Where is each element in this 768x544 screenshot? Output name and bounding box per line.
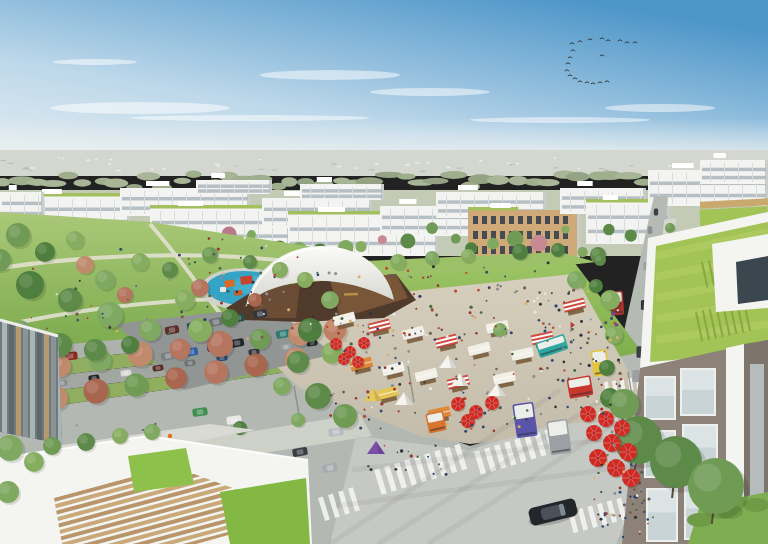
far-treeline: [58, 172, 78, 180]
umbrella-pole-top: [605, 418, 607, 420]
window: [554, 216, 559, 224]
person: [534, 270, 536, 272]
person: [356, 370, 358, 372]
tree-highlight: [172, 341, 182, 351]
roof-box: [9, 185, 17, 190]
person: [538, 291, 541, 294]
window-reflection: [646, 378, 674, 396]
person: [474, 364, 476, 366]
person: [640, 491, 642, 493]
person: [502, 336, 504, 338]
person: [611, 430, 614, 433]
person: [546, 340, 548, 342]
person: [76, 318, 79, 321]
person: [545, 327, 547, 329]
tree: [530, 235, 547, 252]
roof-box: [178, 201, 203, 206]
tree: [625, 230, 637, 242]
person: [422, 277, 425, 280]
person: [391, 367, 394, 370]
far-structure: [599, 168, 605, 169]
far-structure: [331, 164, 336, 165]
person: [345, 340, 347, 342]
person: [365, 351, 367, 353]
person: [518, 425, 521, 428]
person: [208, 237, 211, 240]
person: [488, 286, 491, 289]
far-treeline: [440, 171, 467, 179]
roof-box: [458, 185, 478, 190]
person: [632, 463, 635, 466]
person: [587, 331, 589, 333]
umbrella-pole-top: [615, 467, 617, 469]
umbrella-pole-top: [587, 413, 589, 415]
tree-highlight: [86, 381, 99, 394]
person: [506, 423, 508, 425]
car: [654, 209, 658, 216]
person: [76, 424, 78, 426]
person: [516, 290, 518, 292]
roof-box: [318, 207, 345, 212]
tree-highlight: [289, 353, 300, 364]
person: [31, 317, 33, 319]
person: [102, 317, 104, 319]
tree-highlight: [146, 426, 154, 434]
umbrella-pole-top: [593, 432, 595, 434]
umbrella-pole-top: [621, 427, 623, 429]
person: [310, 323, 312, 325]
far-structure: [86, 159, 90, 161]
tree-highlight: [167, 369, 178, 380]
person: [432, 265, 435, 268]
mullion: [234, 183, 235, 192]
facade-stripe: [51, 318, 56, 448]
mullion: [324, 187, 325, 198]
person: [475, 332, 478, 335]
person: [619, 491, 622, 494]
window: [500, 231, 505, 239]
person: [65, 315, 67, 317]
person: [495, 368, 497, 370]
mullion: [248, 183, 249, 192]
person: [416, 456, 418, 458]
penthouse-glass: [736, 256, 768, 304]
person: [79, 280, 81, 282]
person: [563, 301, 565, 303]
person: [496, 287, 499, 290]
person: [203, 318, 206, 321]
person: [616, 336, 619, 339]
person: [634, 516, 637, 519]
person: [414, 333, 416, 335]
person: [557, 378, 560, 381]
tree-highlight: [308, 386, 321, 399]
person: [610, 471, 612, 473]
person: [544, 292, 547, 295]
tree-highlight: [514, 246, 522, 254]
person: [387, 354, 389, 356]
roof-box: [42, 189, 62, 194]
aerial-render: [0, 0, 768, 544]
person: [446, 423, 449, 426]
person: [487, 391, 489, 393]
person: [598, 378, 600, 380]
far-structure: [354, 167, 357, 169]
person: [587, 337, 589, 339]
person: [394, 357, 396, 359]
far-structure: [374, 163, 378, 165]
person: [623, 503, 626, 506]
person: [595, 333, 597, 335]
person: [380, 427, 382, 429]
person: [355, 397, 358, 400]
person: [363, 415, 366, 418]
tree-highlight: [127, 376, 139, 388]
person: [619, 487, 622, 490]
person: [540, 413, 543, 416]
window: [509, 216, 514, 224]
person: [619, 514, 622, 517]
person: [209, 272, 211, 274]
person: [398, 410, 400, 412]
mullion: [672, 173, 673, 204]
umbrella-pole-top: [349, 351, 351, 353]
tree-highlight: [193, 281, 202, 290]
far-structure: [369, 169, 375, 170]
window: [680, 368, 716, 416]
person: [580, 320, 583, 323]
person: [400, 449, 403, 452]
window: [545, 216, 550, 224]
person: [366, 332, 369, 335]
umbrella-pole-top: [457, 403, 459, 405]
person: [469, 311, 472, 314]
person: [600, 384, 602, 386]
person: [548, 397, 551, 400]
person: [526, 409, 528, 411]
person: [384, 366, 387, 369]
person: [532, 300, 535, 303]
tree-highlight: [595, 255, 601, 261]
mullion: [624, 205, 625, 242]
mullion: [368, 217, 369, 254]
facade-stripe: [23, 318, 28, 448]
person: [622, 470, 625, 473]
person: [410, 454, 413, 457]
person: [252, 281, 255, 284]
person: [632, 503, 634, 505]
far-structure: [95, 158, 98, 160]
person: [119, 248, 122, 251]
tree-highlight: [190, 320, 202, 332]
person: [539, 367, 542, 370]
tree-highlight: [274, 264, 282, 272]
person: [371, 406, 373, 408]
tree-highlight: [244, 256, 251, 263]
far-structure: [516, 163, 519, 165]
facade-stripe: [2, 318, 7, 448]
window-band: [702, 168, 766, 172]
tree-highlight: [204, 249, 212, 257]
person: [317, 327, 319, 329]
far-treeline: [137, 172, 161, 180]
far-treeline: [536, 179, 559, 186]
mullion: [272, 201, 273, 226]
tree-highlight: [86, 341, 97, 352]
far-structure: [7, 163, 13, 164]
person: [461, 339, 463, 341]
person: [236, 290, 239, 293]
person: [607, 454, 609, 456]
person: [607, 524, 609, 526]
far-structure: [668, 165, 671, 167]
person: [561, 379, 564, 382]
person: [609, 404, 611, 406]
far-structure: [509, 164, 514, 165]
person: [188, 263, 190, 265]
person: [532, 375, 535, 378]
person: [542, 322, 545, 325]
person: [226, 290, 228, 292]
person: [464, 430, 467, 433]
person: [380, 402, 383, 405]
play-structure: [240, 275, 253, 285]
person: [482, 426, 485, 429]
person: [259, 304, 262, 307]
roof-box: [672, 163, 694, 168]
person: [282, 291, 284, 293]
far-structure: [30, 167, 34, 169]
person: [197, 280, 199, 282]
person: [597, 472, 599, 474]
person: [222, 272, 225, 275]
person: [423, 381, 425, 383]
umbrella-pole-top: [467, 420, 469, 422]
person: [328, 271, 331, 274]
window-band: [302, 189, 382, 193]
person: [465, 272, 467, 274]
far-structure: [415, 162, 419, 164]
person: [407, 350, 410, 353]
person: [590, 330, 592, 332]
left-glass-building: [0, 318, 63, 448]
window: [500, 246, 505, 254]
person: [619, 362, 621, 364]
person: [291, 327, 294, 330]
mullion: [686, 173, 687, 204]
tree-highlight: [177, 292, 187, 302]
umbrella-pole-top: [611, 442, 613, 444]
far-structure: [217, 165, 220, 167]
person: [250, 336, 252, 338]
tree-highlight: [275, 379, 284, 388]
person: [636, 494, 639, 497]
far-structure: [578, 168, 580, 170]
person: [580, 347, 582, 349]
person: [641, 502, 643, 504]
person: [222, 238, 224, 240]
window: [518, 216, 523, 224]
person: [366, 390, 369, 393]
person: [109, 326, 112, 329]
window-band: [122, 197, 248, 201]
person: [647, 497, 650, 500]
person: [571, 328, 573, 330]
person: [407, 269, 410, 272]
person: [376, 327, 379, 330]
person: [623, 445, 625, 447]
person: [639, 482, 641, 484]
window: [554, 231, 559, 239]
tree: [487, 238, 499, 250]
far-structure: [427, 162, 430, 164]
person: [511, 353, 514, 356]
person: [445, 473, 448, 476]
umbrella-pole-top: [627, 451, 629, 453]
mullion: [310, 187, 311, 198]
tree-highlight: [119, 289, 127, 297]
person: [240, 257, 242, 259]
person: [335, 312, 338, 315]
tree-highlight: [223, 311, 232, 320]
person: [217, 247, 220, 250]
tree-highlight: [68, 233, 77, 242]
person: [265, 292, 268, 295]
far-treeline: [73, 179, 91, 186]
tree-highlight: [552, 244, 559, 251]
roof-box: [399, 199, 416, 204]
person: [146, 318, 149, 321]
tree-highlight: [292, 414, 299, 421]
person: [46, 327, 48, 329]
person: [427, 276, 429, 278]
person: [575, 399, 577, 401]
person: [168, 278, 171, 281]
mullion: [446, 195, 447, 216]
far-structure: [272, 170, 277, 171]
person: [617, 309, 619, 311]
person: [330, 394, 332, 396]
person: [326, 326, 328, 328]
person: [432, 473, 434, 475]
mullion: [220, 183, 221, 192]
person: [609, 372, 611, 374]
far-structure: [22, 168, 28, 169]
mullion: [390, 209, 391, 234]
person: [391, 329, 394, 332]
far-treeline: [174, 178, 191, 184]
tree-highlight: [26, 454, 36, 464]
tree-highlight: [45, 439, 54, 448]
tree-highlight: [590, 280, 597, 287]
tree-highlight: [0, 438, 13, 451]
person: [527, 398, 529, 400]
far-structure: [447, 167, 451, 169]
mullion: [144, 191, 145, 214]
person: [142, 429, 144, 431]
person: [456, 378, 458, 380]
person: [601, 525, 604, 528]
person: [493, 430, 496, 433]
person: [391, 384, 394, 387]
person: [342, 391, 345, 394]
mullion: [404, 209, 405, 234]
far-structure: [61, 158, 64, 160]
person: [411, 327, 413, 329]
person: [514, 291, 516, 293]
person: [595, 360, 597, 362]
tree-highlight: [141, 321, 152, 332]
person: [408, 275, 410, 277]
person: [613, 322, 616, 325]
mullion: [418, 209, 419, 234]
umbrella-pole-top: [597, 457, 599, 459]
person: [600, 491, 602, 493]
far-structure: [337, 166, 341, 168]
person: [554, 304, 557, 307]
tree-highlight: [666, 224, 671, 229]
person: [207, 306, 209, 308]
person: [181, 315, 184, 318]
person: [480, 311, 483, 314]
car-roof: [196, 409, 203, 415]
window: [491, 216, 496, 224]
far-structure: [23, 167, 29, 168]
mullion: [366, 187, 367, 198]
person: [297, 256, 299, 258]
person: [486, 300, 488, 302]
person: [178, 254, 181, 257]
person: [618, 372, 621, 375]
person: [624, 517, 626, 519]
person: [523, 286, 526, 289]
mullion: [354, 217, 355, 254]
person: [349, 320, 352, 323]
person: [483, 411, 486, 414]
person: [525, 302, 528, 305]
far-treeline: [185, 171, 201, 178]
tree-highlight: [114, 430, 122, 438]
person: [606, 336, 609, 339]
tree-highlight: [78, 258, 87, 267]
tree: [603, 224, 614, 235]
person: [208, 294, 211, 297]
person: [259, 272, 262, 275]
person: [370, 468, 373, 471]
person: [87, 317, 89, 319]
far-treeline: [615, 172, 642, 179]
tree-highlight: [392, 256, 400, 264]
truck-roof: [548, 420, 568, 436]
person: [551, 292, 553, 294]
person: [496, 284, 499, 287]
tree: [426, 222, 438, 234]
facade-stripe: [30, 318, 35, 448]
person: [425, 334, 427, 336]
tree-highlight: [601, 362, 609, 370]
person: [612, 461, 614, 463]
person: [368, 397, 370, 399]
window: [500, 216, 505, 224]
person: [595, 400, 598, 403]
tree-highlight: [100, 305, 113, 318]
far-treeline: [104, 179, 128, 188]
person: [335, 410, 338, 413]
person: [245, 305, 247, 307]
person: [358, 276, 361, 279]
tree-highlight: [300, 320, 312, 332]
umbrella-pole-top: [335, 343, 337, 345]
